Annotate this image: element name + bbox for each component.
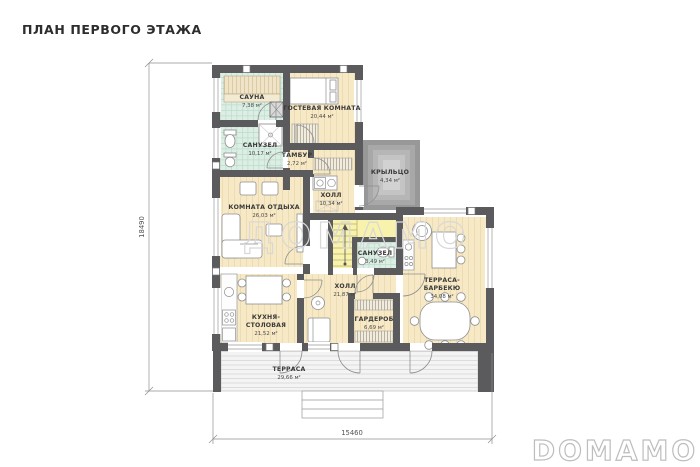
room-area-bathroom-small: 3,49 м² — [365, 258, 385, 265]
window — [424, 206, 466, 216]
room-label-terrace-bbq-2: БАРБЕКЮ — [424, 285, 461, 292]
dimension-height-label: 18490 — [138, 216, 146, 238]
room-label-kitchen-2: СТОЛОВАЯ — [246, 322, 286, 329]
window — [211, 288, 221, 334]
room-area-guest-room: 20,44 м² — [310, 113, 333, 120]
toilet — [225, 135, 235, 148]
window — [354, 80, 364, 122]
chair — [283, 293, 291, 301]
brand-logo: DOMAMO — [532, 434, 698, 467]
armchair — [240, 182, 256, 195]
wardrobe-shelf — [355, 331, 393, 342]
room-label-hall-lower: ХОЛЛ — [334, 283, 355, 290]
window — [485, 228, 495, 288]
chair — [410, 317, 419, 326]
window — [211, 78, 221, 112]
room-label-vestibule: ТАМБУР — [282, 152, 313, 159]
kitchen-counter — [221, 274, 237, 343]
room-area-lounge: 26,03 м² — [252, 212, 275, 219]
room-area-terrace: 29,66 м² — [277, 374, 300, 381]
room-label-sauna: САУНА — [239, 94, 264, 101]
window — [211, 198, 221, 256]
room-area-sauna: 7,38 м² — [242, 102, 262, 109]
room-label-hall-upper: ХОЛЛ — [320, 192, 341, 199]
terrace-floor — [221, 351, 478, 391]
dining-table — [246, 276, 282, 304]
sauna-bench — [224, 76, 280, 94]
page-title: ПЛАН ПЕРВОГО ЭТАЖА — [22, 22, 202, 37]
floor-plan-page: 18490 15460 ДОМАМО САУНА 7,38 м² ГОСТЕВА… — [0, 0, 700, 467]
window — [228, 342, 262, 352]
terrace-steps — [302, 391, 383, 418]
armchair — [262, 182, 278, 195]
chair — [457, 293, 466, 302]
chair — [457, 256, 465, 264]
chair — [471, 317, 480, 326]
chair — [238, 293, 246, 301]
room-label-kitchen-1: КУХНЯ- — [252, 314, 281, 321]
entrance-door-opening — [354, 185, 364, 207]
chair — [238, 279, 246, 287]
room-area-hall-lower: 21,87 м² — [333, 291, 356, 298]
floor-plan-drawing: 18490 15460 ДОМАМО САУНА 7,38 м² ГОСТЕВА… — [0, 0, 700, 467]
room-label-bathroom-large: САНУЗЕЛ — [243, 142, 277, 149]
room-area-porch: 4,34 м² — [380, 177, 400, 184]
sink — [225, 157, 235, 167]
room-area-wardrobe: 6,69 м² — [364, 324, 384, 331]
dimension-width-label: 15460 — [341, 429, 363, 437]
hall-bench — [308, 318, 330, 342]
pillow — [330, 92, 336, 102]
room-area-vestibule: 2,72 м² — [287, 160, 307, 167]
room-label-terrace: ТЕРРАСА — [272, 366, 305, 373]
room-area-bathroom-large: 10,17 м² — [248, 150, 271, 157]
room-label-porch: КРЫЛЬЦО — [371, 169, 409, 176]
chair — [283, 279, 291, 287]
pillow — [330, 80, 336, 90]
room-area-hall-upper: 10,34 м² — [319, 200, 342, 207]
dining-table-large — [420, 302, 470, 340]
room-label-lounge: КОМНАТА ОТДЫХА — [228, 204, 299, 211]
round-table — [312, 297, 325, 310]
room-label-terrace-bbq-1: ТЕРРАСА- — [424, 277, 460, 284]
entry-closet — [314, 158, 352, 170]
room-label-guest-room: ГОСТЕВАЯ КОМНАТА — [283, 105, 360, 112]
room-area-terrace-bbq: 34,08 м² — [430, 293, 453, 300]
wardrobe-shelf — [355, 300, 393, 310]
room-label-wardrobe: ГАРДЕРОБ — [354, 316, 393, 323]
room-area-kitchen: 21,52 м² — [254, 330, 277, 337]
room-label-bathroom-small: САНУЗЕЛ — [358, 250, 392, 257]
window — [211, 128, 221, 158]
window — [308, 342, 330, 352]
